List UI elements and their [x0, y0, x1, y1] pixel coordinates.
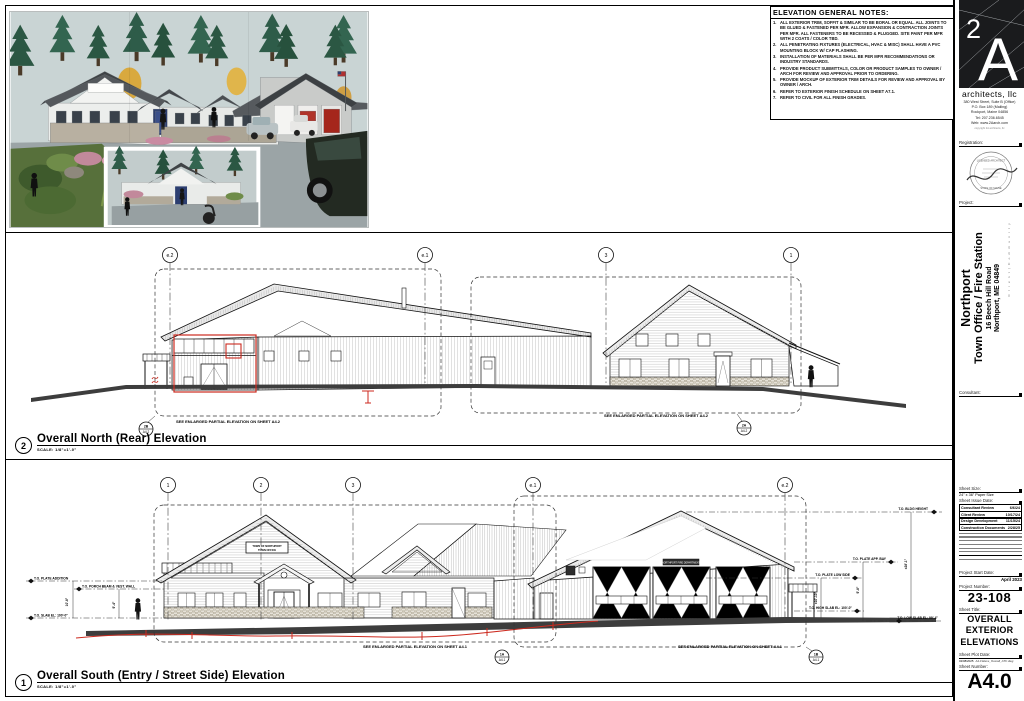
- view-scale: SCALE: 1/8"=1'-0": [37, 684, 952, 689]
- view-title: Overall North (Rear) Elevation: [37, 433, 952, 445]
- note-item: ALL PENETRATING FIXTURES (ELECTRICAL, HV…: [780, 42, 951, 53]
- svg-text:T.O. SLAB EL: 100'-0": T.O. SLAB EL: 100'-0": [34, 614, 68, 618]
- south-elevation-panel: TOWN OF NORTHPORT TOWN OFFICE: [5, 459, 953, 697]
- inset-rendering: [106, 146, 259, 227]
- label-registration: Registration:: [959, 140, 1022, 147]
- project-address: 16 Beech Hill Road: [986, 207, 993, 389]
- view-scale: SCALE: 1/8"=1'-0": [37, 447, 952, 452]
- plot-date-row: 02/08/2025 A4.0 Elevs_Overall_ATC.dwg: [959, 659, 1022, 663]
- detail-tag: 1B A4.1: [809, 650, 823, 664]
- sheet-number: A4.0: [955, 670, 1024, 694]
- apparatus-bay-doors: [593, 567, 770, 618]
- svg-text:10'-8": 10'-8": [65, 597, 69, 606]
- svg-text:T.O. HIGH SLAB EL: 100'-0": T.O. HIGH SLAB EL: 100'-0": [809, 606, 852, 610]
- svg-text:TOWN OF NORTHPORT: TOWN OF NORTHPORT: [252, 544, 282, 548]
- svg-text:T.O. LOW SLAB EL: 99'-4": T.O. LOW SLAB EL: 99'-4": [897, 616, 938, 620]
- svg-text:1: 1: [790, 253, 793, 259]
- svg-text:T.O. PLATE APP. BAY: T.O. PLATE APP. BAY: [853, 557, 887, 561]
- grid-bubbles: 1 2 3 e.1 e.2: [161, 478, 793, 493]
- south-view-label: 1 Overall South (Entry / Street Side) El…: [15, 670, 952, 694]
- svg-text:T.O. PORCH BEAM & VEST. WALL: T.O. PORCH BEAM & VEST. WALL: [82, 585, 135, 589]
- project-name-block: Northport Town Office / Fire Station 16 …: [959, 207, 1023, 389]
- note-item: PROVIDE MOCKUP OF EXTERIOR TRIM DETAILS …: [780, 77, 951, 88]
- enlarged-note-left: SEE ENLARGED PARTIAL ELEVATION ON SHEET …: [176, 419, 281, 424]
- label-consultant: Consultant:: [959, 390, 1022, 397]
- svg-text:T.O. PLATE LOW SIDE: T.O. PLATE LOW SIDE: [815, 573, 851, 577]
- sheet-size-value: 24" x 36" Paper Size: [959, 493, 1022, 497]
- issue-row: Construction Documents2/28/25: [959, 524, 1022, 531]
- svg-text:±10'-10": ±10'-10": [814, 591, 818, 604]
- sheet-title: OVERALL EXTERIOR ELEVATIONS: [955, 614, 1024, 648]
- north-office-gable: [603, 285, 840, 386]
- svg-text:9'-4": 9'-4": [112, 601, 116, 608]
- project-city: Northport, ME 04849: [994, 207, 1001, 389]
- firm-logo: 2 A: [959, 0, 1024, 88]
- label-sheet-title: Sheet Title:: [959, 607, 1022, 614]
- svg-text:1A: 1A: [500, 653, 505, 657]
- svg-text:2: 2: [260, 483, 263, 489]
- ground-line: [86, 617, 936, 636]
- svg-text:2A: 2A: [742, 424, 747, 428]
- svg-text:e.1: e.1: [530, 483, 537, 489]
- notes-title: ELEVATION GENERAL NOTES:: [771, 7, 953, 19]
- plot-date: 02/08/2025: [959, 659, 973, 663]
- svg-text:NORTHPORT FIRE DEPARTMENT: NORTHPORT FIRE DEPARTMENT: [662, 561, 701, 564]
- top-band-panel: ELEVATION GENERAL NOTES: 1.ALL EXTERIOR …: [5, 5, 953, 233]
- svg-text:1: 1: [167, 483, 170, 489]
- project-name: Northport: [959, 207, 973, 389]
- sheet-page: ELEVATION GENERAL NOTES: 1.ALL EXTERIOR …: [0, 0, 1024, 701]
- architect-seal: LICENSED ARCHITECT STATE OF MAINE: [959, 148, 1023, 198]
- enlarged-note-left: SEE ENLARGED PARTIAL ELEVATION ON SHEET …: [363, 644, 468, 649]
- titleblock-sidebar: 2 A architects, llc 380 West Street, Sui…: [953, 0, 1024, 701]
- note-item: INSTALLATION OF MATERIALS SHALL BE PER M…: [780, 54, 951, 65]
- detail-tag: 1A A4.1: [495, 650, 509, 664]
- firm-copyright: copyright 2A architects, llc: [955, 127, 1024, 130]
- left-datum-callouts: T.O. PLATE ADDITION T.O. PORCH BEAM & VE…: [26, 577, 166, 621]
- north-entry-door: [716, 356, 730, 386]
- person-figure: [135, 598, 141, 619]
- elevation-general-notes: ELEVATION GENERAL NOTES: 1.ALL EXTERIOR …: [770, 6, 954, 120]
- project-number: 23-108: [955, 590, 1024, 605]
- svg-text:±28'-1": ±28'-1": [904, 558, 908, 569]
- project-start-date: April 2023: [959, 577, 1022, 582]
- svg-text:T.O. PLATE ADDITION: T.O. PLATE ADDITION: [34, 577, 69, 581]
- enlarged-note-right: SEE ENLARGED PARTIAL ELEVATION ON SHEET …: [678, 644, 783, 649]
- svg-text:A4.1: A4.1: [813, 658, 820, 662]
- note-item: PROVIDE PRODUCT SUBMITTALS, COLOR OR PRO…: [780, 66, 951, 77]
- north-elevation-drawing: e.2 e.1 3 1 2B A4.2 SEE ENLARGED PARTIAL…: [6, 233, 952, 459]
- svg-text:e.2: e.2: [167, 253, 174, 259]
- firm-name: architects, llc: [955, 89, 1024, 99]
- svg-text:T.O. BLDG HEIGHT: T.O. BLDG HEIGHT: [898, 507, 928, 511]
- svg-text:2B: 2B: [144, 425, 149, 429]
- svg-text:3: 3: [352, 483, 355, 489]
- label-project: Project:: [959, 200, 1022, 207]
- view-number-bubble: 1: [15, 674, 32, 691]
- fire-station-elevation: NORTHPORT FIRE DEPARTMENT: [494, 511, 817, 619]
- view-number-bubble: 2: [15, 437, 32, 454]
- note-item: ALL EXTERIOR TRIM, SOFFIT & SIMILAR TO B…: [780, 20, 951, 41]
- vent-stack: [402, 288, 406, 308]
- project-subtitle: Town Office / Fire Station: [973, 207, 985, 389]
- svg-text:A4.1: A4.1: [499, 658, 506, 662]
- svg-text:3: 3: [605, 253, 608, 259]
- svg-text:1B: 1B: [814, 653, 819, 657]
- svg-text:A: A: [978, 26, 1018, 88]
- svg-text:e.2: e.2: [782, 483, 789, 489]
- north-elevation-panel: e.2 e.1 3 1 2B A4.2 SEE ENLARGED PARTIAL…: [5, 232, 953, 460]
- svg-text:e.1: e.1: [422, 253, 429, 259]
- south-elevation-drawing: TOWN OF NORTHPORT TOWN OFFICE: [6, 460, 952, 696]
- firm-web: Web: www.2Aarch.com: [955, 121, 1024, 126]
- note-item: REFER TO CIVIL FOR ALL FINISH GRADES.: [780, 95, 951, 100]
- perspective-rendering: [9, 11, 369, 228]
- ground-line: [31, 384, 906, 408]
- north-rear-building: [143, 284, 591, 390]
- client-community-note: C l i e n t | C o m m u n i t y: [1007, 222, 1011, 296]
- svg-text:9'-8": 9'-8": [856, 586, 860, 593]
- svg-text:LICENSED ARCHITECT: LICENSED ARCHITECT: [977, 159, 1006, 163]
- issue-date-table: Consultant Review6/6/24 Client Review10/…: [959, 505, 1022, 531]
- yellow-tree: [227, 67, 247, 95]
- plot-file: A4.0 Elevs_Overall_ATC.dwg: [975, 659, 1013, 663]
- view-title: Overall South (Entry / Street Side) Elev…: [37, 670, 952, 682]
- north-view-label: 2 Overall North (Rear) Elevation SCALE: …: [15, 433, 952, 457]
- blank-revision-rules: [959, 533, 1022, 560]
- note-item: REFER TO EXTERIOR FINISH SCHEDULE ON SHE…: [780, 89, 951, 94]
- enlarged-note-right: SEE ENLARGED PARTIAL ELEVATION ON SHEET …: [604, 413, 709, 418]
- svg-text:STATE OF MAINE: STATE OF MAINE: [980, 186, 1002, 190]
- grid-bubbles: e.2 e.1 3 1: [163, 248, 799, 263]
